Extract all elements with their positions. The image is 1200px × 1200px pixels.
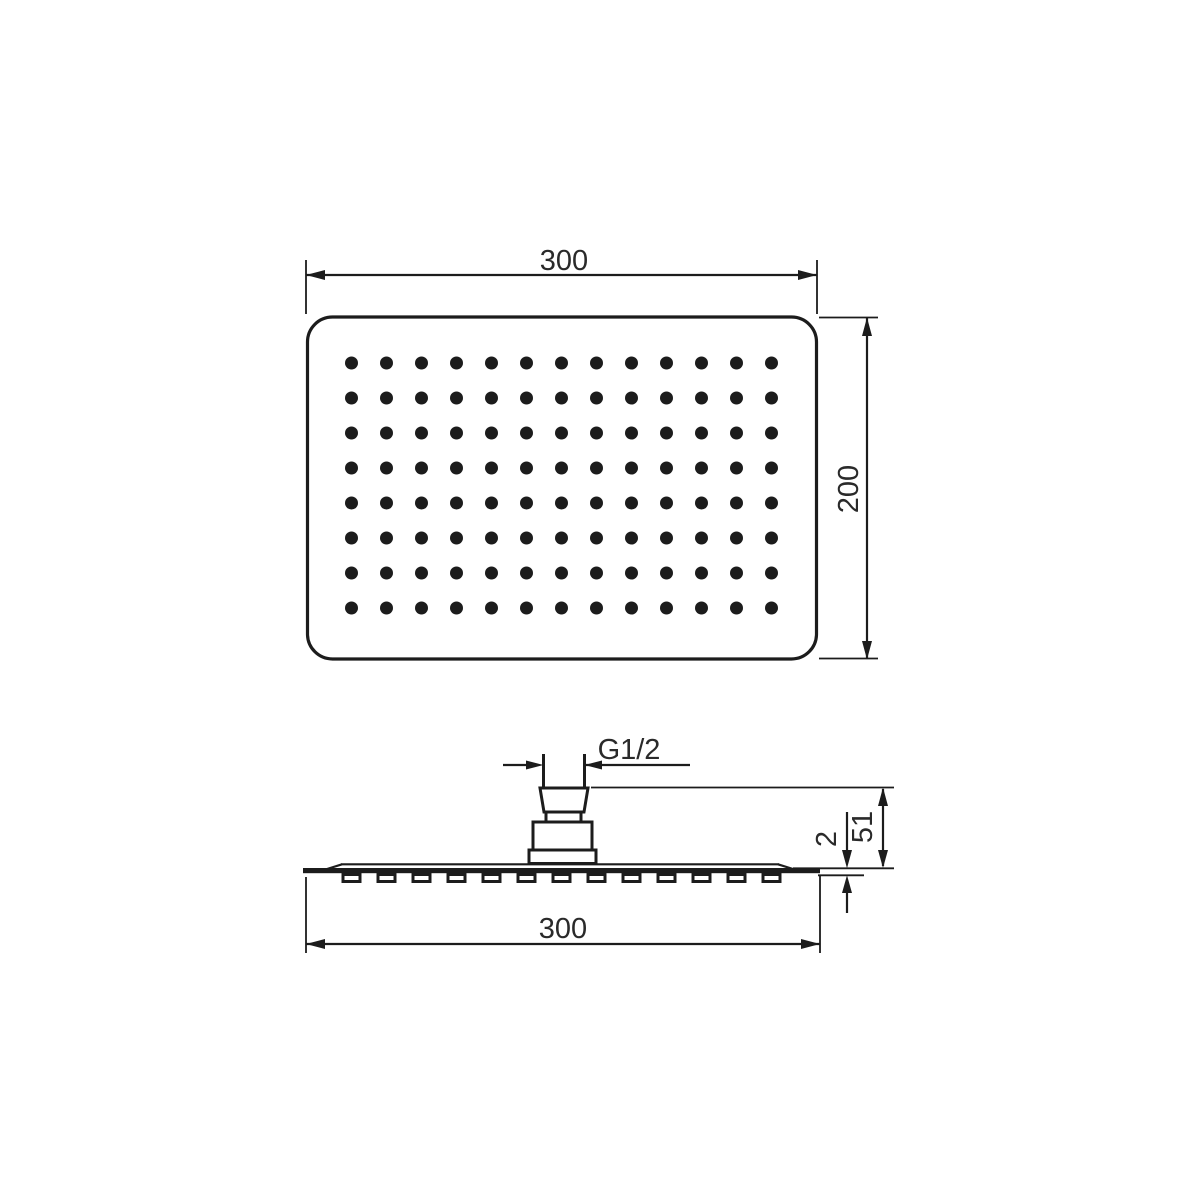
spray-hole-dot: [345, 427, 358, 440]
spray-hole-dot: [415, 497, 428, 510]
spray-hole-dot: [345, 392, 358, 405]
spray-hole-dot: [730, 497, 743, 510]
arrowhead-up: [842, 875, 852, 893]
top-height-dimension: 200: [819, 318, 878, 660]
spray-hole-dot: [695, 567, 708, 580]
spray-hole-dot: [450, 427, 463, 440]
spray-hole-dot: [765, 602, 778, 615]
spray-hole-dot: [450, 497, 463, 510]
nozzle-tip: [483, 875, 500, 882]
nozzle-tip: [728, 875, 745, 882]
spray-hole-dot: [695, 462, 708, 475]
spray-hole-dot: [380, 427, 393, 440]
side-height-label: 51: [847, 811, 879, 843]
spray-hole-dot: [660, 462, 673, 475]
spray-hole-dot: [590, 427, 603, 440]
spray-hole-dot: [625, 567, 638, 580]
spray-hole-dot: [485, 567, 498, 580]
spray-hole-dot: [625, 462, 638, 475]
spray-hole-dot: [730, 602, 743, 615]
spray-hole-dot: [450, 462, 463, 475]
inlet-connector: [529, 754, 596, 864]
spray-hole-dot: [380, 392, 393, 405]
spray-hole-dot: [590, 567, 603, 580]
spray-hole-dot: [730, 357, 743, 370]
spray-hole-dot: [520, 392, 533, 405]
spray-hole-dot: [625, 392, 638, 405]
spray-hole-dot: [345, 497, 358, 510]
spray-hole-dot: [415, 532, 428, 545]
plate-profile: [303, 864, 820, 881]
spray-hole-dot: [380, 497, 393, 510]
nozzle-tip: [693, 875, 710, 882]
spray-hole-dot: [590, 602, 603, 615]
spray-hole-dot: [485, 532, 498, 545]
spray-hole-dot: [660, 357, 673, 370]
spray-hole-dot: [590, 357, 603, 370]
spray-hole-dot: [345, 532, 358, 545]
spray-hole-dot: [765, 567, 778, 580]
spray-hole-dot: [345, 462, 358, 475]
spray-hole-dot: [625, 497, 638, 510]
spray-hole-dot: [625, 602, 638, 615]
spray-hole-dot: [520, 427, 533, 440]
nozzle-tip: [658, 875, 675, 882]
spray-hole-dot: [695, 602, 708, 615]
spray-hole-dot: [415, 392, 428, 405]
spray-hole-dot: [555, 532, 568, 545]
nozzle-tip: [378, 875, 395, 882]
spray-hole-dot: [590, 392, 603, 405]
spray-hole-dot: [625, 357, 638, 370]
top-width-label: 300: [540, 245, 588, 277]
top-height-label: 200: [833, 465, 865, 513]
spray-hole-dot: [660, 427, 673, 440]
spray-hole-dot: [485, 497, 498, 510]
spray-hole-dot: [555, 462, 568, 475]
spray-hole-dot: [415, 427, 428, 440]
nozzle-tip: [763, 875, 780, 882]
spray-hole-dot: [555, 427, 568, 440]
spray-hole-dot: [380, 532, 393, 545]
spray-hole-dot: [660, 497, 673, 510]
spray-hole-dot: [380, 462, 393, 475]
spray-hole-dot: [520, 462, 533, 475]
spray-hole-dot: [520, 532, 533, 545]
spray-hole-dot: [660, 567, 673, 580]
plate-bottom-band: [303, 868, 820, 873]
arrowhead-right: [798, 270, 817, 280]
side-nozzle-row: [343, 875, 780, 882]
plate-thickness-label: 2: [811, 831, 843, 847]
arrowhead-left: [306, 270, 325, 280]
spray-hole-dot: [520, 602, 533, 615]
side-width-label: 300: [539, 913, 587, 945]
spray-hole-dot: [555, 357, 568, 370]
spray-hole-dot: [730, 567, 743, 580]
spray-hole-dot: [485, 602, 498, 615]
spray-hole-dot: [345, 357, 358, 370]
nozzle-tip: [553, 875, 570, 882]
spray-hole-dot: [695, 532, 708, 545]
connector-collar: [533, 822, 592, 850]
arrowhead-right: [801, 939, 820, 949]
arrowhead-up: [862, 318, 872, 337]
thread-nut: [540, 788, 588, 812]
spray-hole-dot: [730, 462, 743, 475]
spray-hole-dot: [345, 602, 358, 615]
spray-hole-dot: [660, 532, 673, 545]
spray-hole-dot: [450, 602, 463, 615]
spray-hole-dot: [380, 567, 393, 580]
top-view: 300 200: [306, 245, 878, 660]
spray-hole-dot: [660, 392, 673, 405]
nozzle-tip: [623, 875, 640, 882]
spray-hole-dot: [450, 532, 463, 545]
spray-hole-dot: [730, 392, 743, 405]
spray-hole-dot: [380, 357, 393, 370]
spray-hole-dot: [625, 532, 638, 545]
arrowhead-left: [306, 939, 325, 949]
nozzle-tip: [518, 875, 535, 882]
side-view: G1/2 51 2 300: [303, 734, 894, 953]
spray-hole-grid: [345, 357, 778, 615]
thread-size-label: G1/2: [598, 734, 661, 766]
spray-hole-dot: [520, 357, 533, 370]
spray-hole-dot: [590, 532, 603, 545]
spray-hole-dot: [730, 532, 743, 545]
spray-hole-dot: [625, 427, 638, 440]
spray-hole-dot: [765, 497, 778, 510]
spray-hole-dot: [415, 357, 428, 370]
spray-hole-dot: [415, 462, 428, 475]
spray-hole-dot: [485, 462, 498, 475]
spray-hole-dot: [765, 427, 778, 440]
spray-hole-dot: [555, 497, 568, 510]
spray-hole-dot: [415, 602, 428, 615]
nozzle-tip: [413, 875, 430, 882]
spray-hole-dot: [450, 392, 463, 405]
spray-hole-dot: [380, 602, 393, 615]
spray-hole-dot: [555, 392, 568, 405]
spray-hole-dot: [555, 567, 568, 580]
drawing-canvas: 300 200: [0, 0, 1200, 1200]
spray-hole-dot: [555, 602, 568, 615]
spray-hole-dot: [765, 532, 778, 545]
spray-hole-dot: [415, 567, 428, 580]
spray-hole-dot: [590, 462, 603, 475]
spray-hole-dot: [695, 427, 708, 440]
spray-hole-dot: [345, 567, 358, 580]
spray-hole-dot: [695, 392, 708, 405]
thread-dimension: G1/2: [503, 734, 690, 770]
arrowhead-down: [862, 641, 872, 660]
nozzle-tip: [588, 875, 605, 882]
connector-base-flange: [529, 850, 596, 864]
spray-hole-dot: [485, 357, 498, 370]
spray-hole-dot: [485, 427, 498, 440]
spray-hole-dot: [695, 497, 708, 510]
arrowhead-right: [526, 761, 544, 770]
spray-hole-dot: [485, 392, 498, 405]
spray-hole-dot: [695, 357, 708, 370]
nozzle-tip: [343, 875, 360, 882]
spray-hole-dot: [730, 427, 743, 440]
spray-hole-dot: [765, 357, 778, 370]
arrowhead-down: [878, 850, 888, 868]
arrowhead-down: [842, 850, 852, 868]
spray-hole-dot: [765, 392, 778, 405]
technical-drawing: 300 200: [0, 0, 1200, 1200]
spray-hole-dot: [450, 567, 463, 580]
spray-hole-dot: [450, 357, 463, 370]
top-width-dimension: 300: [306, 245, 817, 314]
spray-hole-dot: [765, 462, 778, 475]
arrowhead-up: [878, 788, 888, 807]
nozzle-tip: [448, 875, 465, 882]
spray-hole-dot: [660, 602, 673, 615]
side-width-dimension: 300: [306, 876, 820, 953]
spray-hole-dot: [520, 567, 533, 580]
spray-hole-dot: [520, 497, 533, 510]
spray-hole-dot: [590, 497, 603, 510]
